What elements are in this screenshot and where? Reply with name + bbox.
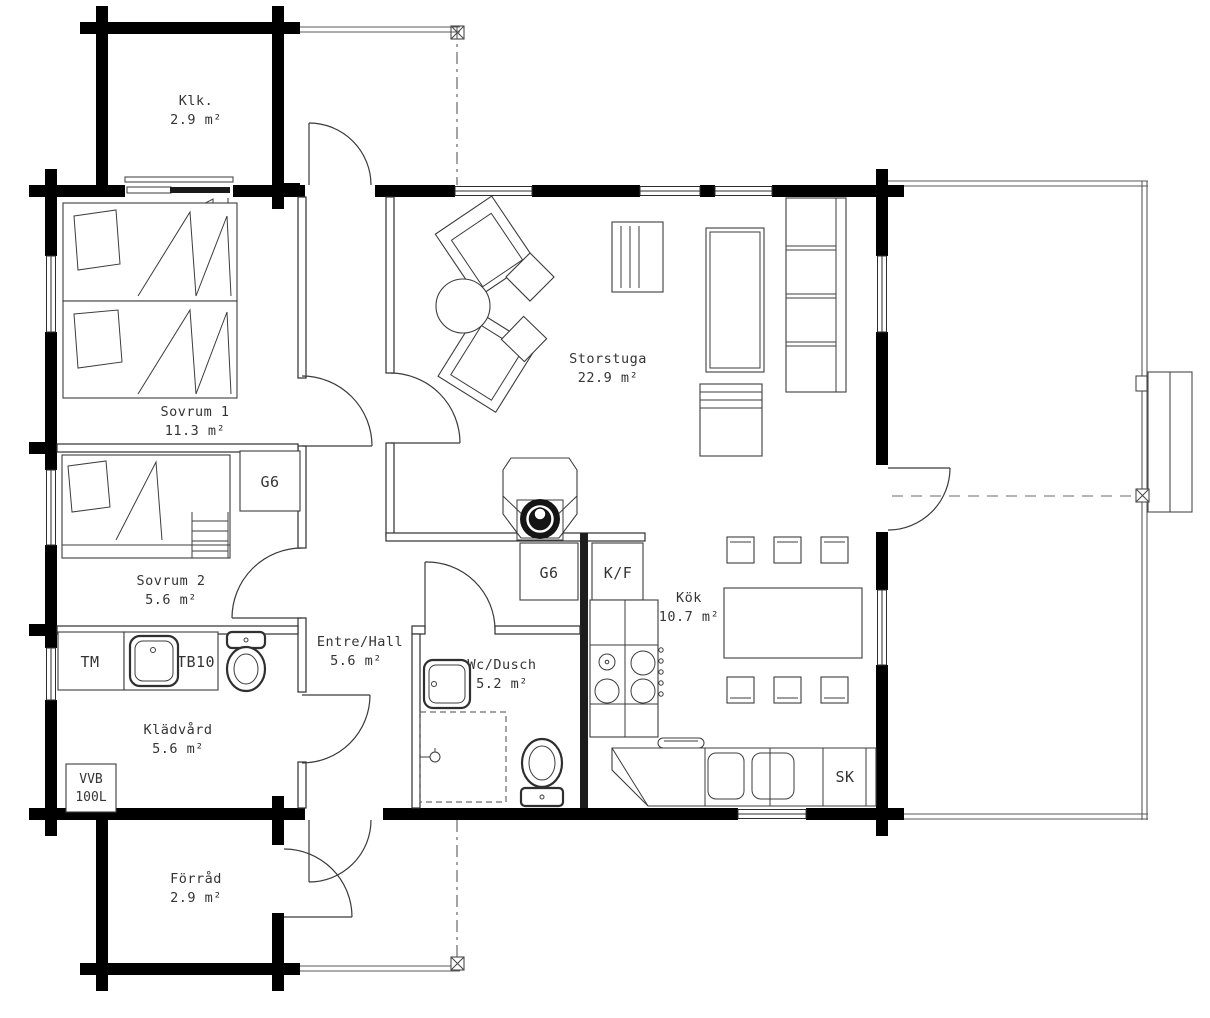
washing-machine-label: TM: [80, 653, 99, 671]
deck-post-icon: [1136, 489, 1149, 502]
bench-icon: [700, 384, 762, 456]
door-arc-wc: [425, 562, 495, 630]
door-arc-forrad: [284, 849, 352, 917]
svg-text:2.9 m²: 2.9 m²: [170, 890, 222, 906]
water-heater-icon: VVB 100L: [66, 764, 116, 812]
door-arc-kladvard: [302, 695, 370, 763]
svg-text:22.9 m²: 22.9 m²: [578, 370, 638, 386]
fireplace-icon: [503, 458, 577, 540]
door-arc-right-deck: [888, 468, 950, 530]
cleaning-cabinet: SK: [835, 768, 854, 786]
deck-post-icon: [451, 957, 464, 970]
svg-text:Klädvård: Klädvård: [143, 721, 212, 738]
room-label-sovrum1: Sovrum 1 11.3 m²: [160, 404, 229, 439]
wardrobe-bedroom-label: G6: [260, 473, 279, 491]
shower-icon: [420, 712, 506, 802]
long-table-icon: [706, 228, 764, 372]
sofa-icon: [786, 198, 846, 392]
water-heater-label2: 100L: [75, 790, 106, 805]
door-arc-sovrum2: [232, 548, 302, 618]
room-label-kok: Kök 10.7 m²: [659, 590, 719, 625]
fridge-freezer-label: K/F: [604, 564, 633, 582]
svg-text:Entre/Hall: Entre/Hall: [317, 634, 403, 650]
washing-machine-icon: TM: [58, 632, 124, 690]
svg-text:Sovrum 2: Sovrum 2: [136, 573, 205, 589]
room-label-klk: Klk. 2.9 m²: [170, 93, 222, 128]
bed-icon: [63, 301, 237, 398]
room-label-forrad: Förråd 2.9 m²: [170, 870, 222, 906]
wardrobe-hall: G6: [520, 543, 578, 600]
svg-text:5.6 m²: 5.6 m²: [145, 592, 197, 608]
window-icon: [878, 256, 887, 332]
room-label-storstuga: Storstuga 22.9 m²: [569, 351, 647, 386]
counter-appliance-icon: [658, 738, 704, 748]
svg-text:5.2 m²: 5.2 m²: [476, 676, 528, 692]
window-icon: [738, 810, 806, 819]
door-arc-bottom-deck: [309, 820, 371, 882]
window-icon: [455, 187, 532, 196]
svg-text:10.7 m²: 10.7 m²: [659, 609, 719, 625]
fridge-freezer: K/F: [592, 543, 643, 600]
round-table-icon: [436, 279, 490, 333]
right-deck: [888, 181, 1192, 820]
svg-text:Förråd: Förråd: [170, 870, 222, 887]
dining-table-icon: [724, 537, 862, 703]
window-icon: [640, 187, 700, 196]
floor-plan: G6 TM TB10 VVB 100L: [0, 0, 1210, 1018]
window-icon: [47, 256, 56, 332]
svg-text:5.6 m²: 5.6 m²: [152, 741, 204, 757]
window-icon: [715, 187, 772, 196]
cleaning-cabinet-label: SK: [835, 768, 854, 786]
door-arc-sovrum1: [302, 376, 372, 446]
floorplan-canvas: G6 TM TB10 VVB 100L: [0, 0, 1210, 1018]
svg-text:Klk.: Klk.: [179, 93, 214, 109]
wardrobe-bedroom: G6: [240, 451, 300, 511]
door-arc-front-entrance: [309, 123, 371, 185]
toilet-icon: [521, 739, 563, 806]
svg-text:Storstuga: Storstuga: [569, 351, 647, 367]
laundry-sink-icon: TB10: [124, 632, 218, 690]
toilet-icon: [227, 632, 265, 691]
svg-text:Sovrum 1: Sovrum 1: [160, 404, 229, 420]
window-icon: [878, 590, 887, 665]
bed-icon: [63, 203, 237, 301]
room-label-kladvard: Klädvård 5.6 m²: [143, 721, 212, 757]
top-deck: [284, 26, 464, 185]
svg-text:2.9 m²: 2.9 m²: [170, 112, 222, 128]
washbasin-icon: [424, 660, 470, 708]
water-heater-label1: VVB: [79, 772, 103, 787]
room-label-wc: Wc/Dusch 5.2 m²: [467, 657, 536, 692]
bunk-bed-icon: [62, 455, 230, 558]
room-label-entre: Entre/Hall 5.6 m²: [317, 634, 403, 669]
svg-text:Wc/Dusch: Wc/Dusch: [467, 657, 536, 673]
wardrobe-hall-label: G6: [539, 564, 558, 582]
svg-text:Kök: Kök: [676, 590, 702, 606]
window-icon: [47, 470, 56, 545]
window-icon: [47, 648, 56, 700]
bottom-deck: [284, 820, 464, 971]
tv-bench-icon: [612, 222, 663, 292]
room-label-sovrum2: Sovrum 2 5.6 m²: [136, 573, 205, 608]
svg-text:5.6 m²: 5.6 m²: [330, 653, 382, 669]
svg-text:11.3 m²: 11.3 m²: [165, 423, 225, 439]
laundry-sink-label: TB10: [177, 653, 215, 671]
